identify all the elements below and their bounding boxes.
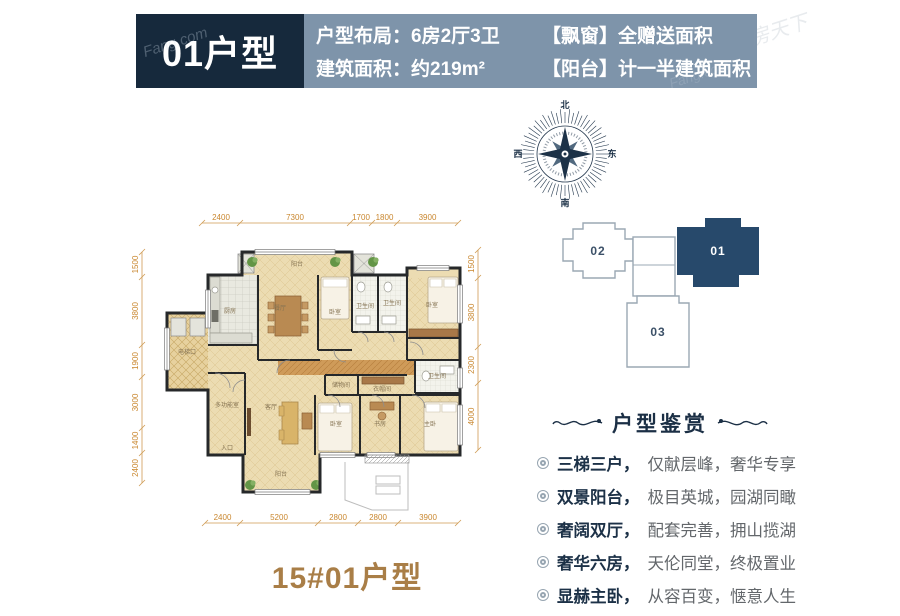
room-label: 储物间	[332, 381, 350, 389]
room-label: 厨房	[224, 307, 236, 315]
dimension-label: 2400	[131, 459, 140, 477]
appreciation-item-head: 三梯三户，	[557, 451, 640, 475]
compass-east-label: 东	[607, 148, 616, 159]
appreciation-section: 户型鉴赏 三梯三户，仅献层峰，奢华专享双景阳台，极目英城，园湖同瞰奢阔双厅，配套…	[535, 408, 785, 616]
dimension-label: 3900	[419, 213, 437, 222]
appreciation-item-tail: 从容百变，惬意人生	[648, 583, 797, 607]
dimension-label: 5200	[270, 513, 288, 522]
site-plan: 020103	[545, 205, 875, 380]
dimension-label: 7300	[286, 213, 304, 222]
room-label: 电梯口	[178, 348, 196, 356]
site-unit-label: 01	[710, 244, 725, 258]
site-corridor	[633, 237, 675, 296]
dimension-label: 1400	[131, 431, 140, 449]
room-label: 卧室	[426, 301, 438, 309]
area-line: 建筑面积：约219m²	[316, 54, 500, 81]
dimension-label: 1800	[376, 213, 394, 222]
dimension-label: 2300	[467, 356, 476, 374]
dimension-label: 3800	[467, 303, 476, 321]
dimension-label: 2800	[329, 513, 347, 522]
room-label: 衣帽间	[373, 385, 391, 393]
dimension-label: 1900	[131, 352, 140, 370]
layout-line: 户型布局：6房2厅3卫	[316, 21, 500, 48]
site-unit-label: 02	[590, 244, 605, 258]
room-label: 卫生间	[356, 302, 374, 310]
room-label: 卫生间	[428, 372, 446, 380]
dimension-label: 1500	[467, 255, 476, 273]
entry-porch	[345, 462, 408, 510]
dimension-label: 3000	[131, 393, 140, 411]
bullet-icon	[537, 523, 549, 535]
dimension-label: 2400	[214, 513, 232, 522]
appreciation-item: 双景阳台，极目英城，园湖同瞰	[537, 484, 785, 508]
room-label: 入口	[221, 445, 233, 452]
header-info-box: 户型布局：6房2厅3卫 建筑面积：约219m² 【飘窗】全赠送面积 【阳台】计一…	[304, 14, 757, 88]
unit-title: 01户型	[162, 25, 278, 77]
appreciation-item: 显赫主卧，从容百变，惬意人生	[537, 583, 785, 607]
site-unit-label: 03	[650, 325, 665, 339]
room-label: 餐厅	[274, 304, 286, 312]
balcony-note: 【阳台】计一半建筑面积	[542, 54, 751, 81]
unit-title-box: 01户型	[136, 14, 304, 88]
appreciation-item-head: 奢华六房，	[557, 550, 640, 574]
appreciation-item: 奢阔双厅，配套完善，拥山揽湖	[537, 517, 785, 541]
dimension-label: 3900	[419, 513, 437, 522]
dimension-label: 1700	[352, 213, 370, 222]
dimension-label: 2800	[369, 513, 387, 522]
appreciation-item-head: 显赫主卧，	[557, 583, 640, 607]
dimension-label: 2400	[212, 213, 230, 222]
room-label: 主卧	[424, 420, 436, 428]
bullet-icon	[537, 490, 549, 502]
room-label: 阳台	[275, 470, 287, 478]
room-label: 书房	[374, 420, 386, 428]
appreciation-item-head: 奢阔双厅，	[557, 517, 640, 541]
bullet-icon	[537, 457, 549, 469]
bay-window-note: 【飘窗】全赠送面积	[542, 21, 751, 48]
header-info-left: 户型布局：6房2厅3卫 建筑面积：约219m²	[316, 14, 500, 88]
room-label: 卧室	[329, 308, 341, 316]
room-label: 卫生间	[383, 299, 401, 307]
room-label: 客厅	[265, 403, 277, 411]
flourish-left-icon	[552, 415, 604, 431]
dimension-label: 3800	[131, 302, 140, 320]
dimension-label: 4000	[467, 407, 476, 425]
appreciation-list: 三梯三户，仅献层峰，奢华专享双景阳台，极目英城，园湖同瞰奢阔双厅，配套完善，拥山…	[535, 451, 785, 607]
room-label: 多功能室	[215, 401, 239, 409]
appreciation-title-row: 户型鉴赏	[535, 408, 785, 438]
appreciation-item: 三梯三户，仅献层峰，奢华专享	[537, 451, 785, 475]
flyer-page: 01户型 户型布局：6房2厅3卫 建筑面积：约219m² 【飘窗】全赠送面积 【…	[0, 0, 900, 600]
compass-icon: 北东南西	[508, 96, 622, 210]
header-info-right: 【飘窗】全赠送面积 【阳台】计一半建筑面积	[542, 14, 751, 88]
flourish-right-icon	[716, 415, 768, 431]
appreciation-item-tail: 极目英城，园湖同瞰	[648, 484, 797, 508]
compass-west-label: 西	[513, 149, 522, 159]
appreciation-title: 户型鉴赏	[612, 408, 708, 438]
room-label: 阳台	[291, 260, 303, 268]
dimension-label: 1500	[131, 255, 140, 273]
appreciation-item-tail: 配套完善，拥山揽湖	[648, 517, 797, 541]
floor-plan: 2400730017001800390024005200280028003900…	[130, 210, 520, 530]
floorplan-caption: 15#01户型	[152, 553, 542, 597]
appreciation-item-tail: 天伦同堂，终极置业	[648, 550, 797, 574]
appreciation-item-head: 双景阳台，	[557, 484, 640, 508]
compass-north-label: 北	[560, 99, 569, 110]
ac-platform	[365, 455, 409, 463]
room-label: 卧室	[330, 420, 342, 428]
appreciation-item: 奢华六房，天伦同堂，终极置业	[537, 550, 785, 574]
appreciation-item-tail: 仅献层峰，奢华专享	[648, 451, 797, 475]
